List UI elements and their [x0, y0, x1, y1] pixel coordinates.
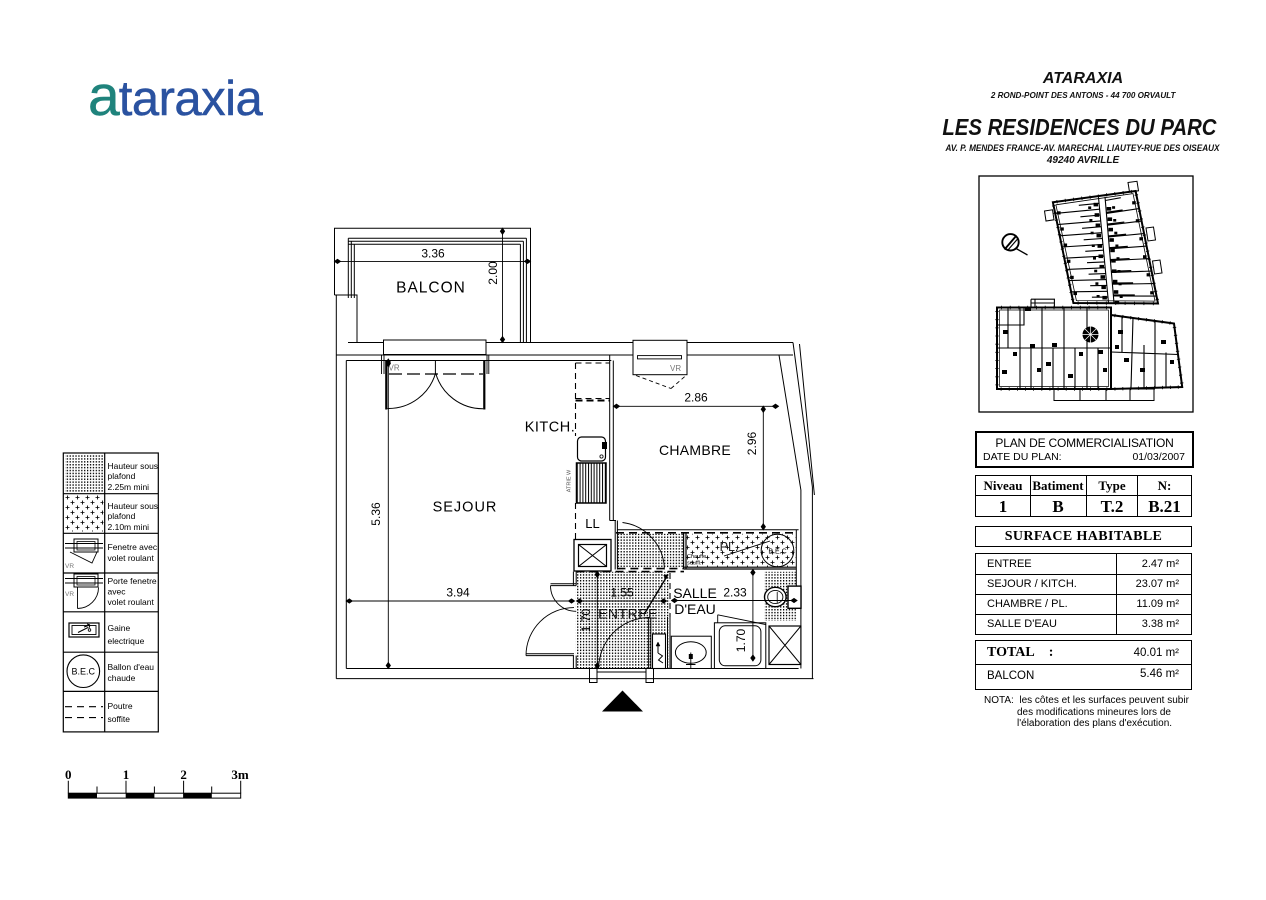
svg-text:2.86: 2.86 [684, 391, 708, 405]
svg-text:3.36: 3.36 [421, 247, 445, 261]
svg-text:Hauteur sous: Hauteur sous [108, 501, 159, 511]
svg-text:Gaine: Gaine [108, 623, 131, 633]
svg-text:Porte fenetre: Porte fenetre [108, 576, 157, 586]
svg-text:5.36: 5.36 [369, 502, 383, 526]
svg-text:LL: LL [585, 516, 599, 531]
svg-text:2.33: 2.33 [723, 586, 747, 600]
svg-text:souffl.: souffl. [687, 561, 702, 567]
svg-text:Chauffe: Chauffe [687, 554, 706, 560]
svg-text:2.00: 2.00 [486, 261, 500, 285]
svg-text:soffite: soffite [108, 714, 131, 724]
svg-text:plafond: plafond [108, 471, 136, 481]
svg-text:B.E.C: B.E.C [72, 667, 96, 677]
svg-text:KITCH.: KITCH. [525, 420, 576, 436]
svg-text:2.25m mini: 2.25m mini [108, 482, 150, 492]
svg-text:Fenetre avec: Fenetre avec [108, 542, 158, 552]
svg-text:3.94: 3.94 [446, 586, 470, 600]
svg-text:ATRIE W: ATRIE W [567, 469, 573, 492]
svg-text:volet roulant: volet roulant [108, 597, 155, 607]
svg-text:SALLE: SALLE [673, 585, 717, 601]
svg-text:Hauteur sous: Hauteur sous [108, 461, 159, 471]
svg-text:2.10m mini: 2.10m mini [108, 522, 150, 532]
svg-text:plafond: plafond [108, 511, 136, 521]
svg-text:Poutre: Poutre [108, 701, 133, 711]
svg-text:1.70: 1.70 [734, 628, 748, 652]
svg-text:2.96: 2.96 [745, 431, 759, 455]
svg-text:VR: VR [389, 364, 400, 373]
svg-text:0: 0 [65, 767, 72, 782]
svg-text:SEJOUR: SEJOUR [433, 500, 498, 516]
svg-text:VR: VR [670, 364, 681, 373]
svg-text:CHAMBRE: CHAMBRE [659, 442, 731, 458]
svg-text:BALCON: BALCON [396, 280, 466, 297]
svg-text:2: 2 [180, 767, 187, 782]
svg-text:1.70: 1.70 [579, 608, 593, 632]
svg-text:D'EAU: D'EAU [674, 601, 716, 617]
svg-text:Ballon d'eau: Ballon d'eau [108, 662, 155, 672]
svg-text:B.E.C: B.E.C [768, 549, 786, 556]
svg-text:avec: avec [108, 587, 127, 597]
svg-text:3m: 3m [231, 767, 249, 782]
svg-text:chaude: chaude [108, 673, 136, 683]
svg-text:1: 1 [123, 767, 130, 782]
svg-text:electrique: electrique [108, 636, 145, 646]
svg-text:1.55: 1.55 [610, 586, 634, 600]
svg-text:VR: VR [65, 563, 74, 570]
svg-text:VR: VR [65, 591, 74, 598]
svg-text:volet roulant: volet roulant [108, 553, 155, 563]
svg-text:ENTREE: ENTREE [598, 606, 658, 622]
